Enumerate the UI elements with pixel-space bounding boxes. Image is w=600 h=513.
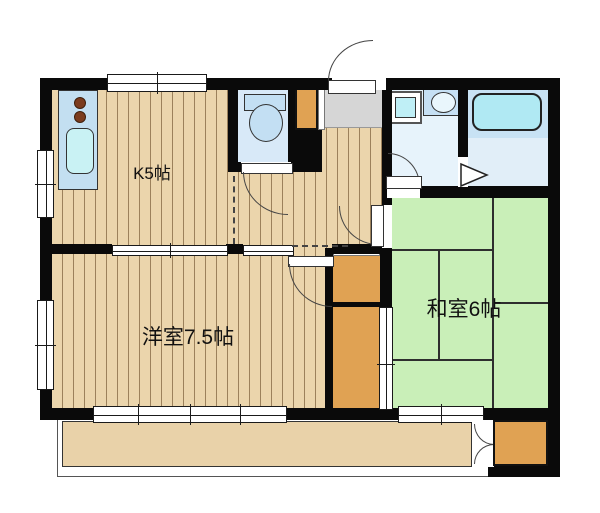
closet-lower — [332, 307, 380, 408]
entrance-door-leaf — [328, 80, 376, 94]
wall — [40, 408, 93, 420]
room-label-western-room: 洋室7.5帖 — [108, 321, 268, 351]
shoe-cabinet-door — [318, 88, 325, 130]
wall — [482, 408, 560, 420]
sliding-partition — [112, 245, 228, 256]
balcony-storage — [493, 420, 548, 466]
wash-basin-icon — [431, 92, 456, 113]
wall — [228, 78, 238, 172]
genkan-step-line — [322, 127, 382, 128]
window — [37, 150, 54, 218]
window — [37, 300, 54, 390]
floorplan: K5帖 洋室7.5帖 和室6帖 — [0, 0, 600, 513]
wall — [488, 466, 560, 477]
balcony — [62, 421, 472, 467]
dashed-line — [233, 176, 235, 244]
sliding-partition — [243, 245, 294, 256]
stove-burner-icon — [74, 97, 86, 109]
folding-door-icon — [458, 160, 492, 190]
door-arc — [328, 40, 373, 81]
closet-sliding-door — [379, 307, 393, 410]
toilet-bowl-icon — [249, 104, 283, 142]
wall — [386, 78, 560, 90]
entrance-genkan — [322, 88, 382, 128]
wall — [226, 244, 243, 254]
dashed-line — [292, 245, 348, 247]
tatami-line — [390, 359, 493, 361]
room-label-japanese-room: 和室6帖 — [394, 293, 534, 323]
wall — [40, 216, 52, 300]
tatami-line — [390, 249, 493, 251]
room-label-kitchen: K5帖 — [107, 159, 197, 184]
window — [93, 406, 287, 423]
wall — [40, 78, 52, 150]
washroom-door-leaf — [386, 176, 422, 189]
washing-machine-drum-icon — [395, 97, 416, 118]
bathtub-icon — [472, 93, 542, 131]
wall — [380, 248, 392, 307]
wall — [52, 244, 112, 254]
window — [107, 74, 207, 92]
stove-burner-icon — [74, 111, 86, 123]
wall — [458, 88, 468, 158]
wall — [205, 78, 334, 90]
wall — [382, 88, 392, 128]
shoe-cabinet — [295, 88, 318, 130]
closet-upper — [333, 256, 380, 302]
kitchen-sink-icon — [66, 128, 94, 174]
japanese-room-door-leaf — [371, 205, 384, 247]
